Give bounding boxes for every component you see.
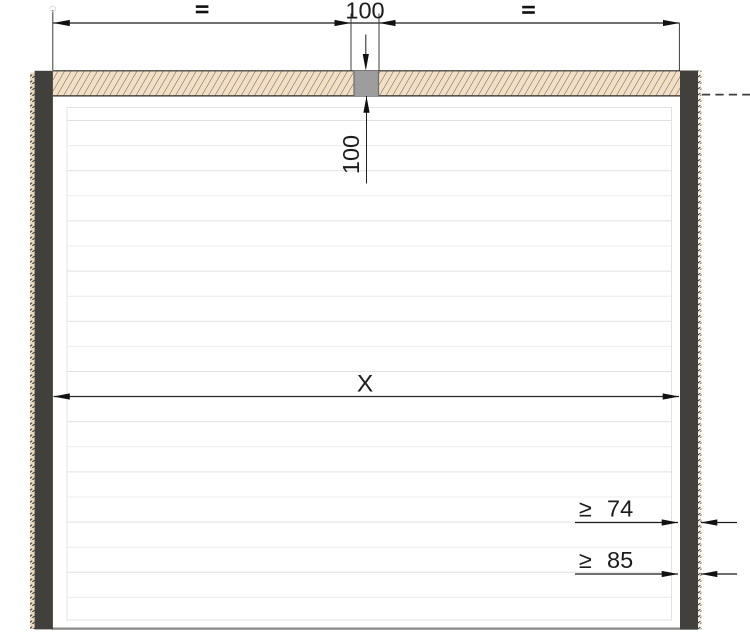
svg-text:100: 100 xyxy=(345,0,384,24)
svg-text:≥: ≥ xyxy=(579,496,592,522)
svg-text:≥: ≥ xyxy=(579,547,592,573)
svg-text:74: 74 xyxy=(607,496,633,522)
svg-text:85: 85 xyxy=(607,547,633,573)
svg-text:100: 100 xyxy=(338,135,364,174)
svg-text:X: X xyxy=(357,371,373,398)
